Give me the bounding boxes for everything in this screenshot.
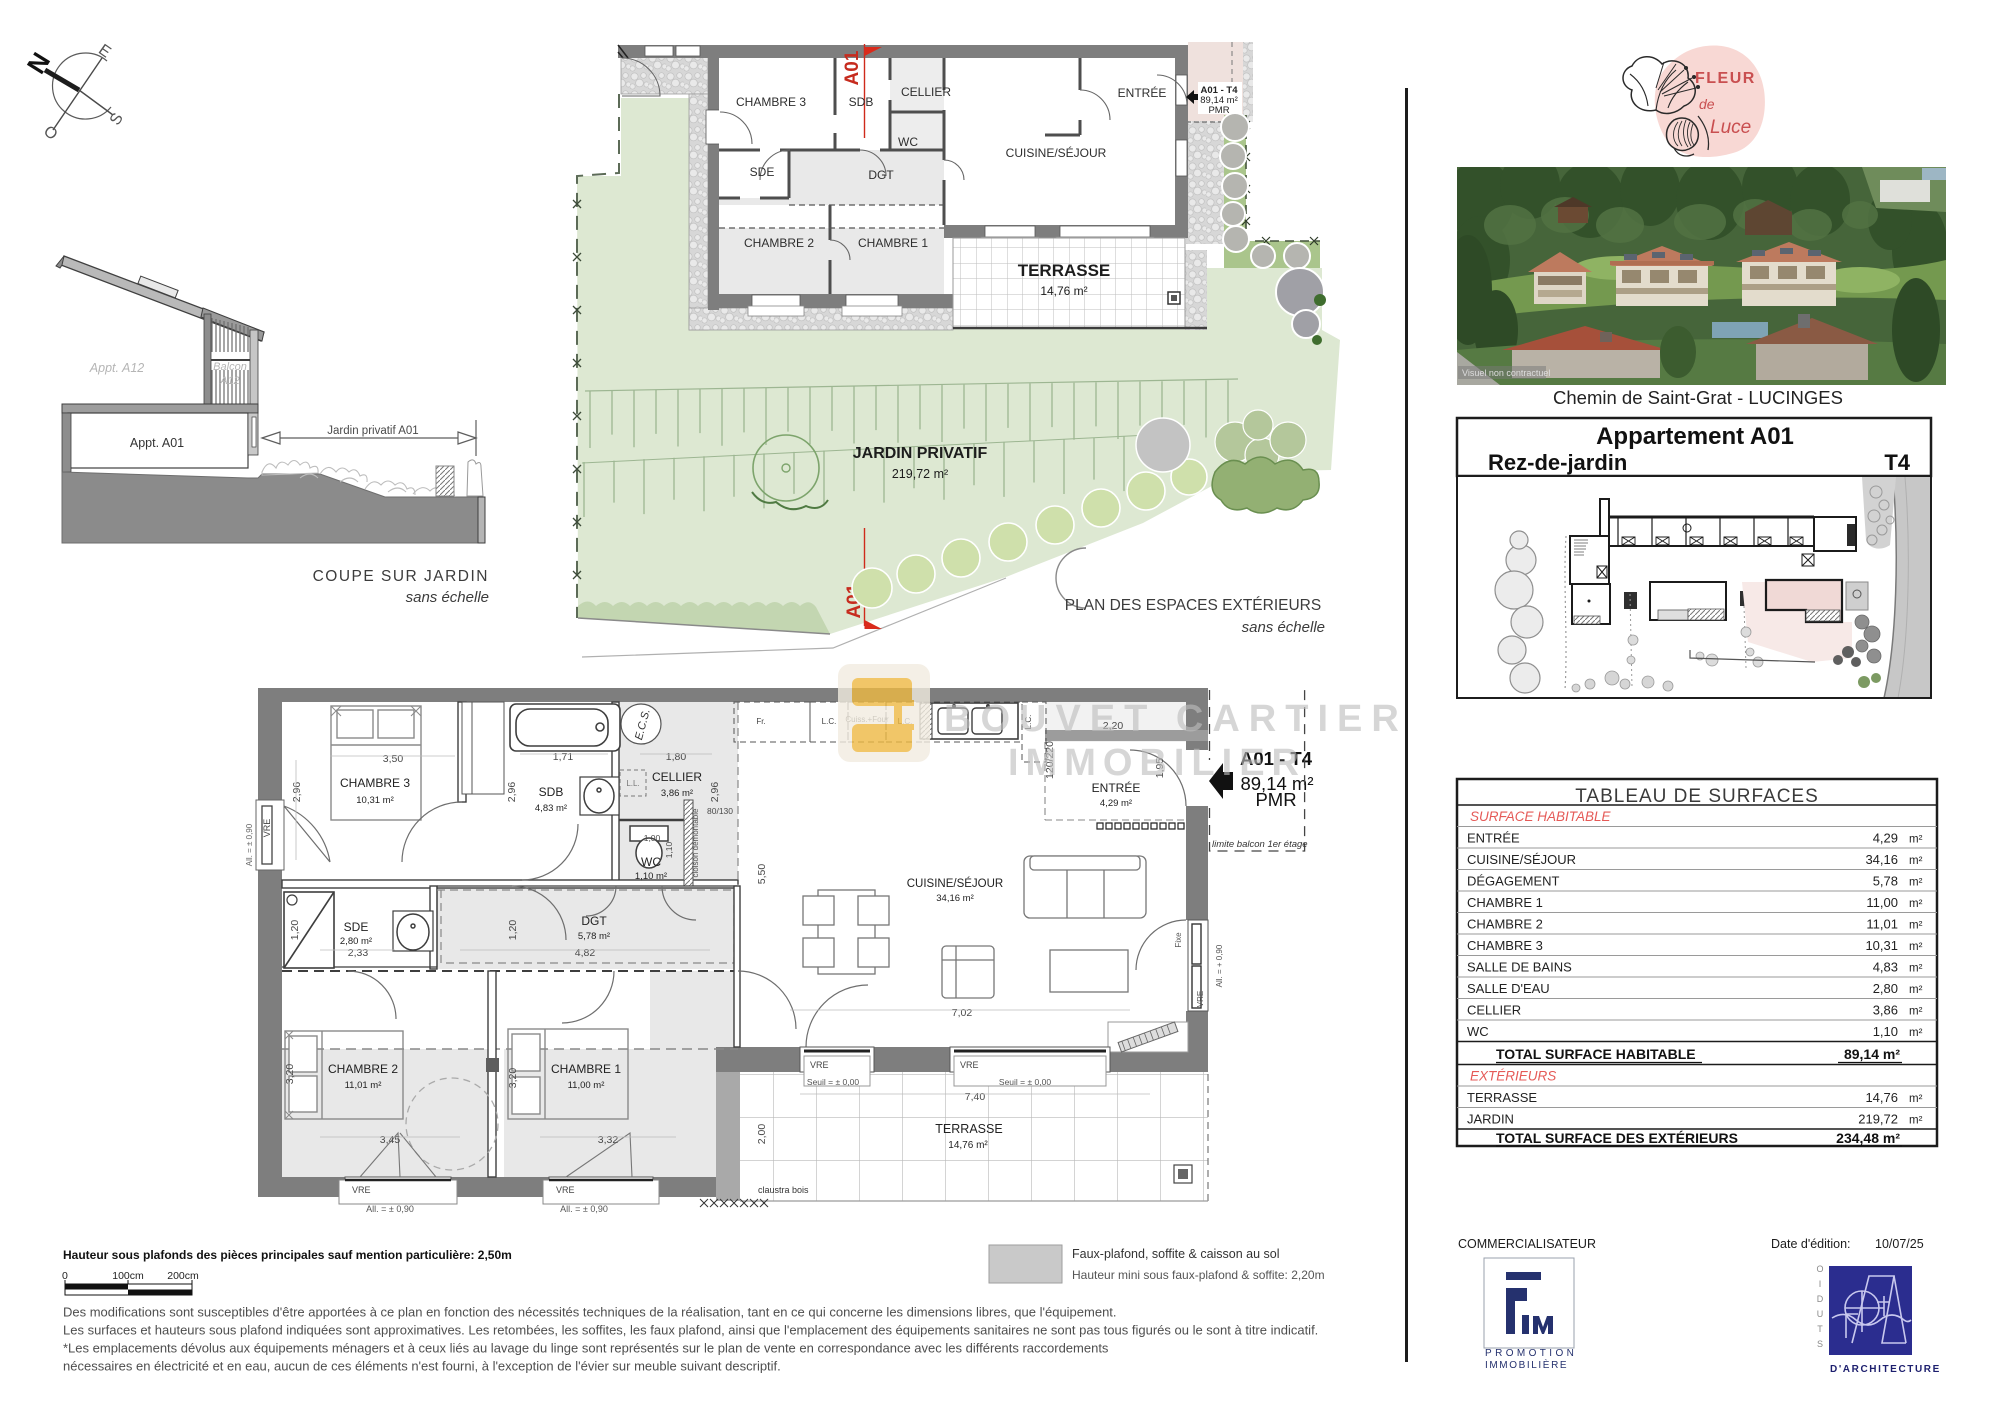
svg-text:34,16: 34,16 [1865,852,1898,867]
svg-text:14,76 m²: 14,76 m² [948,1140,988,1151]
svg-text:CHAMBRE 3: CHAMBRE 3 [736,95,806,109]
svg-text:4,83: 4,83 [1873,960,1898,975]
svg-text:O: O [1816,1264,1823,1274]
svg-text:IMMOBILIER: IMMOBILIER [1008,742,1306,784]
svg-text:2,96: 2,96 [506,782,518,803]
svg-text:10/07/25: 10/07/25 [1875,1237,1924,1251]
svg-text:m²: m² [1909,941,1923,953]
svg-text:219,72 m²: 219,72 m² [892,467,948,481]
svg-text:3,50: 3,50 [383,753,404,765]
svg-text:*Les emplacements dévolus aux: *Les emplacements dévolus aux équipement… [63,1341,1109,1356]
svg-text:DÉGAGEMENT: DÉGAGEMENT [1467,874,1560,889]
svg-text:DGT: DGT [868,168,894,182]
svg-text:11,00: 11,00 [1866,895,1898,910]
svg-text:200cm: 200cm [167,1270,199,1282]
svg-text:Hauteur sous plafonds des pièc: Hauteur sous plafonds des pièces princip… [63,1248,512,1262]
svg-text:TOTAL SURFACE DES EXTÉRIEURS: TOTAL SURFACE DES EXTÉRIEURS [1496,1130,1738,1146]
svg-text:80/130: 80/130 [707,806,733,816]
svg-text:Appt. A12: Appt. A12 [89,361,144,375]
svg-text:SALLE D'EAU: SALLE D'EAU [1467,981,1550,996]
svg-text:Balcon: Balcon [213,361,247,373]
svg-text:11,00 m²: 11,00 m² [568,1080,605,1091]
svg-text:4,29 m²: 4,29 m² [1100,798,1132,809]
svg-text:U: U [1817,1309,1824,1319]
svg-text:11,01: 11,01 [1866,917,1898,932]
svg-text:m²: m² [1909,984,1923,996]
svg-text:3,20: 3,20 [284,1064,296,1085]
svg-text:IMMOBILIÈRE: IMMOBILIÈRE [1485,1358,1568,1371]
svg-text:m²: m² [1909,1115,1923,1127]
svg-text:2,00: 2,00 [756,1124,768,1145]
svg-text:PROMOTION: PROMOTION [1485,1348,1577,1359]
svg-text:All. = + 0,90: All. = + 0,90 [1215,944,1224,987]
svg-text:cloison démontable: cloison démontable [691,808,700,877]
svg-text:Jardin privatif A01: Jardin privatif A01 [327,425,418,437]
svg-text:ENTRÉE: ENTRÉE [1118,85,1167,100]
svg-text:5,78 m²: 5,78 m² [578,931,610,942]
svg-text:A12: A12 [219,375,240,387]
svg-text:claustra bois: claustra bois [758,1185,809,1195]
svg-text:4,83 m²: 4,83 m² [535,803,567,814]
svg-text:Faux-plafond, soffite & caisso: Faux-plafond, soffite & caisson au sol [1072,1247,1280,1261]
svg-text:D'ARCHITECTURE: D'ARCHITECTURE [1830,1364,1941,1375]
svg-text:EXTÉRIEURS: EXTÉRIEURS [1470,1069,1556,1084]
svg-text:nécessaires en électricité et: nécessaires en électricité et en eau, au… [63,1359,781,1374]
svg-text:Appartement A01: Appartement A01 [1596,423,1794,450]
svg-text:PLAN DES ESPACES EXTÉRIEURS: PLAN DES ESPACES EXTÉRIEURS [1065,597,1321,614]
svg-text:CELLIER: CELLIER [652,770,702,784]
svg-text:CUISINE/SÉJOUR: CUISINE/SÉJOUR [1006,145,1107,160]
svg-text:2,33: 2,33 [348,947,369,959]
svg-text:m²: m² [1909,855,1923,867]
svg-text:WC: WC [898,135,918,149]
svg-text:11,01 m²: 11,01 m² [345,1080,382,1091]
svg-text:1,20: 1,20 [289,920,301,941]
svg-text:Fixe: Fixe [1174,932,1183,948]
svg-text:JARDIN: JARDIN [1467,1112,1514,1127]
svg-text:CHAMBRE 1: CHAMBRE 1 [1467,895,1543,910]
svg-text:14,76 m²: 14,76 m² [1040,284,1087,298]
svg-text:2,96: 2,96 [291,782,303,803]
svg-text:VRE: VRE [556,1185,575,1195]
svg-text:T4: T4 [1884,450,1910,475]
svg-text:WC: WC [1467,1024,1489,1039]
svg-text:COMMERCIALISATEUR: COMMERCIALISATEUR [1458,1237,1596,1251]
svg-text:CUISINE/SÉJOUR: CUISINE/SÉJOUR [1467,852,1576,867]
svg-text:PMR: PMR [1255,789,1296,810]
svg-text:T: T [1817,1324,1823,1334]
svg-text:VRE: VRE [1196,991,1205,1007]
svg-text:3,32: 3,32 [598,1134,619,1146]
svg-text:CHAMBRE 2: CHAMBRE 2 [744,236,814,250]
svg-text:VRE: VRE [352,1185,371,1195]
svg-text:sans échelle: sans échelle [406,589,489,606]
svg-text:m²: m² [1909,1006,1923,1018]
svg-text:TERRASSE: TERRASSE [935,1122,1002,1136]
svg-text:1,80: 1,80 [666,751,687,763]
svg-text:1,10: 1,10 [1873,1024,1898,1039]
svg-text:Visuel non contractuel: Visuel non contractuel [1462,368,1550,378]
svg-text:4,29: 4,29 [1873,831,1898,846]
svg-text:A01: A01 [842,50,863,85]
svg-text:m²: m² [1909,1093,1923,1105]
svg-text:Appt. A01: Appt. A01 [130,436,184,450]
svg-text:I: I [1819,1279,1822,1289]
svg-text:SDE: SDE [344,920,369,934]
svg-text:m²: m² [1909,898,1923,910]
svg-text:3,86 m²: 3,86 m² [661,788,693,799]
svg-text:S: S [1817,1339,1823,1349]
svg-text:Seuil = ± 0,00: Seuil = ± 0,00 [807,1077,859,1087]
svg-text:CHAMBRE 3: CHAMBRE 3 [340,776,410,790]
svg-text:Hauteur mini sous faux-plafond: Hauteur mini sous faux-plafond & soffite… [1072,1268,1325,1282]
svg-text:TABLEAU DE SURFACES: TABLEAU DE SURFACES [1575,786,1819,807]
svg-text:D: D [1817,1294,1824,1304]
svg-text:ENTRÉE: ENTRÉE [1467,831,1520,846]
svg-text:de: de [1699,96,1715,112]
svg-text:1,10: 1,10 [664,841,674,858]
svg-text:SURFACE HABITABLE: SURFACE HABITABLE [1470,809,1612,824]
svg-text:m²: m² [1909,920,1923,932]
svg-text:L.C.: L.C. [822,717,837,726]
svg-text:1,20: 1,20 [507,920,519,941]
svg-text:1,00: 1,00 [644,833,661,843]
svg-text:219,72: 219,72 [1858,1112,1898,1127]
svg-text:34,16 m²: 34,16 m² [936,893,974,904]
svg-text:m²: m² [1909,963,1923,975]
svg-text:10,31: 10,31 [1865,938,1898,953]
svg-text:CELLIER: CELLIER [901,85,951,99]
svg-text:sans échelle: sans échelle [1242,619,1325,636]
svg-text:Fr.: Fr. [756,717,765,726]
svg-text:L.L.: L.L. [626,779,639,788]
svg-text:WC: WC [641,855,661,869]
svg-text:SDB: SDB [849,95,874,109]
svg-text:14,76: 14,76 [1865,1090,1898,1105]
svg-text:SDE: SDE [750,165,775,179]
svg-text:Seuil = ± 0,00: Seuil = ± 0,00 [999,1077,1051,1087]
svg-text:CELLIER: CELLIER [1467,1003,1521,1018]
svg-text:CHAMBRE 1: CHAMBRE 1 [551,1062,621,1076]
svg-text:3,45: 3,45 [380,1134,401,1146]
svg-text:Les surfaces et hauteurs sous: Les surfaces et hauteurs sous plafond in… [63,1323,1318,1338]
svg-text:JARDIN PRIVATIF: JARDIN PRIVATIF [853,445,988,462]
svg-text:CHAMBRE 3: CHAMBRE 3 [1467,938,1543,953]
svg-text:234,48 m²: 234,48 m² [1836,1130,1900,1146]
svg-text:m²: m² [1909,1027,1923,1039]
svg-text:limite balcon 1er étage: limite balcon 1er étage [1212,839,1308,850]
svg-text:All. = ± 0,90: All. = ± 0,90 [560,1204,608,1214]
svg-text:SDB: SDB [539,785,564,799]
svg-text:10,31 m²: 10,31 m² [356,795,394,806]
svg-text:2,80 m²: 2,80 m² [340,936,372,947]
svg-text:DGT: DGT [581,914,607,928]
svg-text:All. = ± 0,90: All. = ± 0,90 [245,823,254,866]
svg-text:VRE: VRE [810,1060,829,1070]
svg-text:5,78: 5,78 [1873,874,1898,889]
svg-text:FLEUR: FLEUR [1695,70,1756,87]
svg-text:3,86: 3,86 [1873,1003,1898,1018]
svg-text:7,02: 7,02 [952,1007,973,1019]
svg-text:m²: m² [1909,877,1923,889]
svg-text:TOTAL SURFACE HABITABLE: TOTAL SURFACE HABITABLE [1496,1046,1696,1062]
svg-text:5,50: 5,50 [756,864,768,885]
svg-text:Rez-de-jardin: Rez-de-jardin [1488,450,1627,475]
svg-text:CUISINE/SÉJOUR: CUISINE/SÉJOUR [907,877,1004,890]
svg-text:2,96: 2,96 [709,782,721,803]
svg-text:m²: m² [1909,834,1923,846]
svg-text:Chemin de Saint-Grat - LUCINGE: Chemin de Saint-Grat - LUCINGES [1553,387,1843,408]
svg-text:PMR: PMR [1208,105,1229,116]
svg-text:VRE: VRE [262,819,272,838]
svg-text:COUPE SUR JARDIN: COUPE SUR JARDIN [313,568,489,585]
svg-text:CHAMBRE 2: CHAMBRE 2 [328,1062,398,1076]
svg-text:All. = ± 0,90: All. = ± 0,90 [366,1204,414,1214]
svg-text:BOUVET CARTIER: BOUVET CARTIER [944,698,1408,740]
svg-text:3,20: 3,20 [507,1068,519,1089]
svg-text:VRE: VRE [960,1060,979,1070]
svg-text:4,82: 4,82 [575,947,596,959]
svg-text:TERRASSE: TERRASSE [1467,1090,1537,1105]
svg-text:1,10 m²: 1,10 m² [635,871,667,882]
svg-text:Des modifications sont suscept: Des modifications sont susceptibles d'êt… [63,1305,1117,1320]
svg-text:CHAMBRE 2: CHAMBRE 2 [1467,917,1543,932]
svg-text:2,80: 2,80 [1873,981,1898,996]
svg-text:SALLE DE BAINS: SALLE DE BAINS [1467,960,1572,975]
svg-text:1,71: 1,71 [553,751,574,763]
svg-text:7,40: 7,40 [965,1091,986,1103]
svg-text:Luce: Luce [1710,117,1751,138]
svg-text:CHAMBRE 1: CHAMBRE 1 [858,236,928,250]
svg-text:Date d'édition:: Date d'édition: [1771,1237,1851,1251]
svg-text:TERRASSE: TERRASSE [1018,261,1111,280]
svg-text:89,14 m²: 89,14 m² [1844,1046,1900,1062]
